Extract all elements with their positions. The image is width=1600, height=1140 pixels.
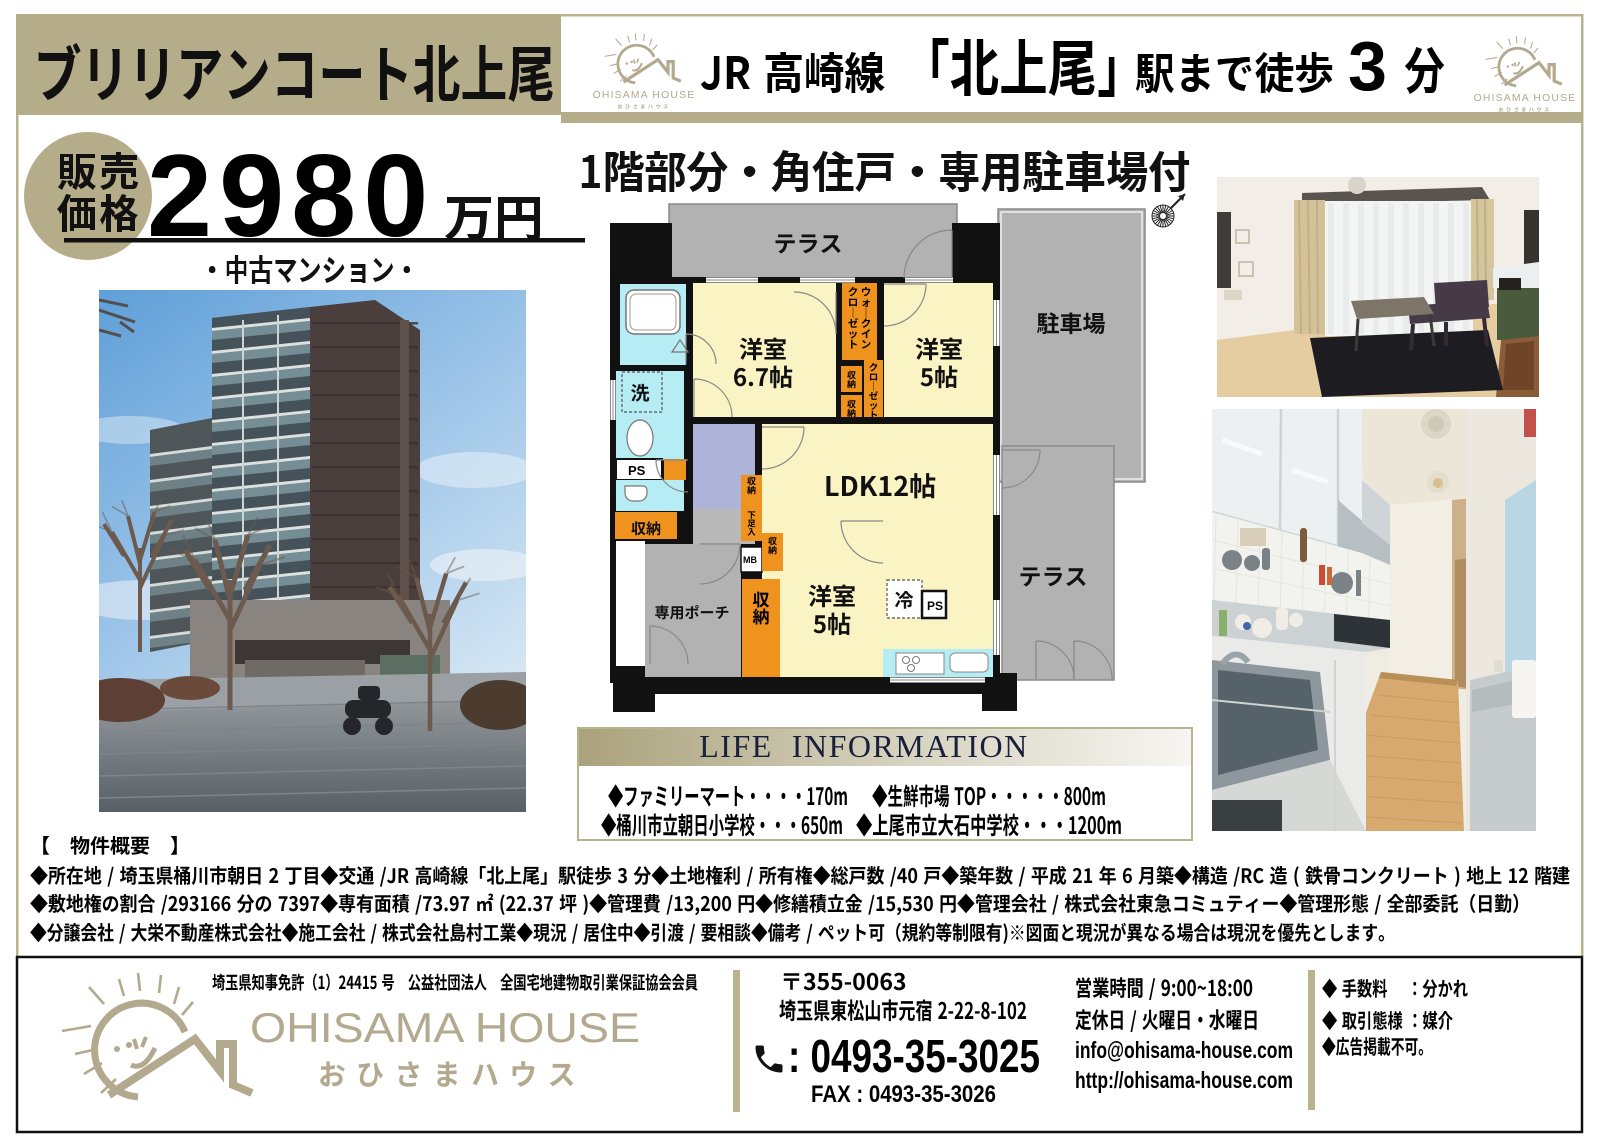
svg-text:http://ohisama-house.com: http://ohisama-house.com [1075, 1067, 1293, 1093]
svg-text:: 0493-35-3025: : 0493-35-3025 [788, 1030, 1040, 1082]
svg-text:PS: PS [628, 463, 646, 478]
svg-text:OHISAMA HOUSE: OHISAMA HOUSE [1474, 93, 1577, 104]
svg-text:MB: MB [743, 555, 757, 565]
svg-text:OHISAMA HOUSE: OHISAMA HOUSE [250, 1004, 640, 1051]
svg-text:OHISAMA HOUSE: OHISAMA HOUSE [593, 90, 696, 101]
svg-text:PS: PS [927, 599, 943, 613]
svg-text:LIFE INFORMATION: LIFE INFORMATION [699, 728, 1029, 764]
svg-text:3: 3 [1348, 27, 1387, 105]
svg-text:FAX : 0493-35-3026: FAX : 0493-35-3026 [811, 1081, 996, 1108]
svg-text:info@ohisama-house.com: info@ohisama-house.com [1075, 1037, 1293, 1063]
